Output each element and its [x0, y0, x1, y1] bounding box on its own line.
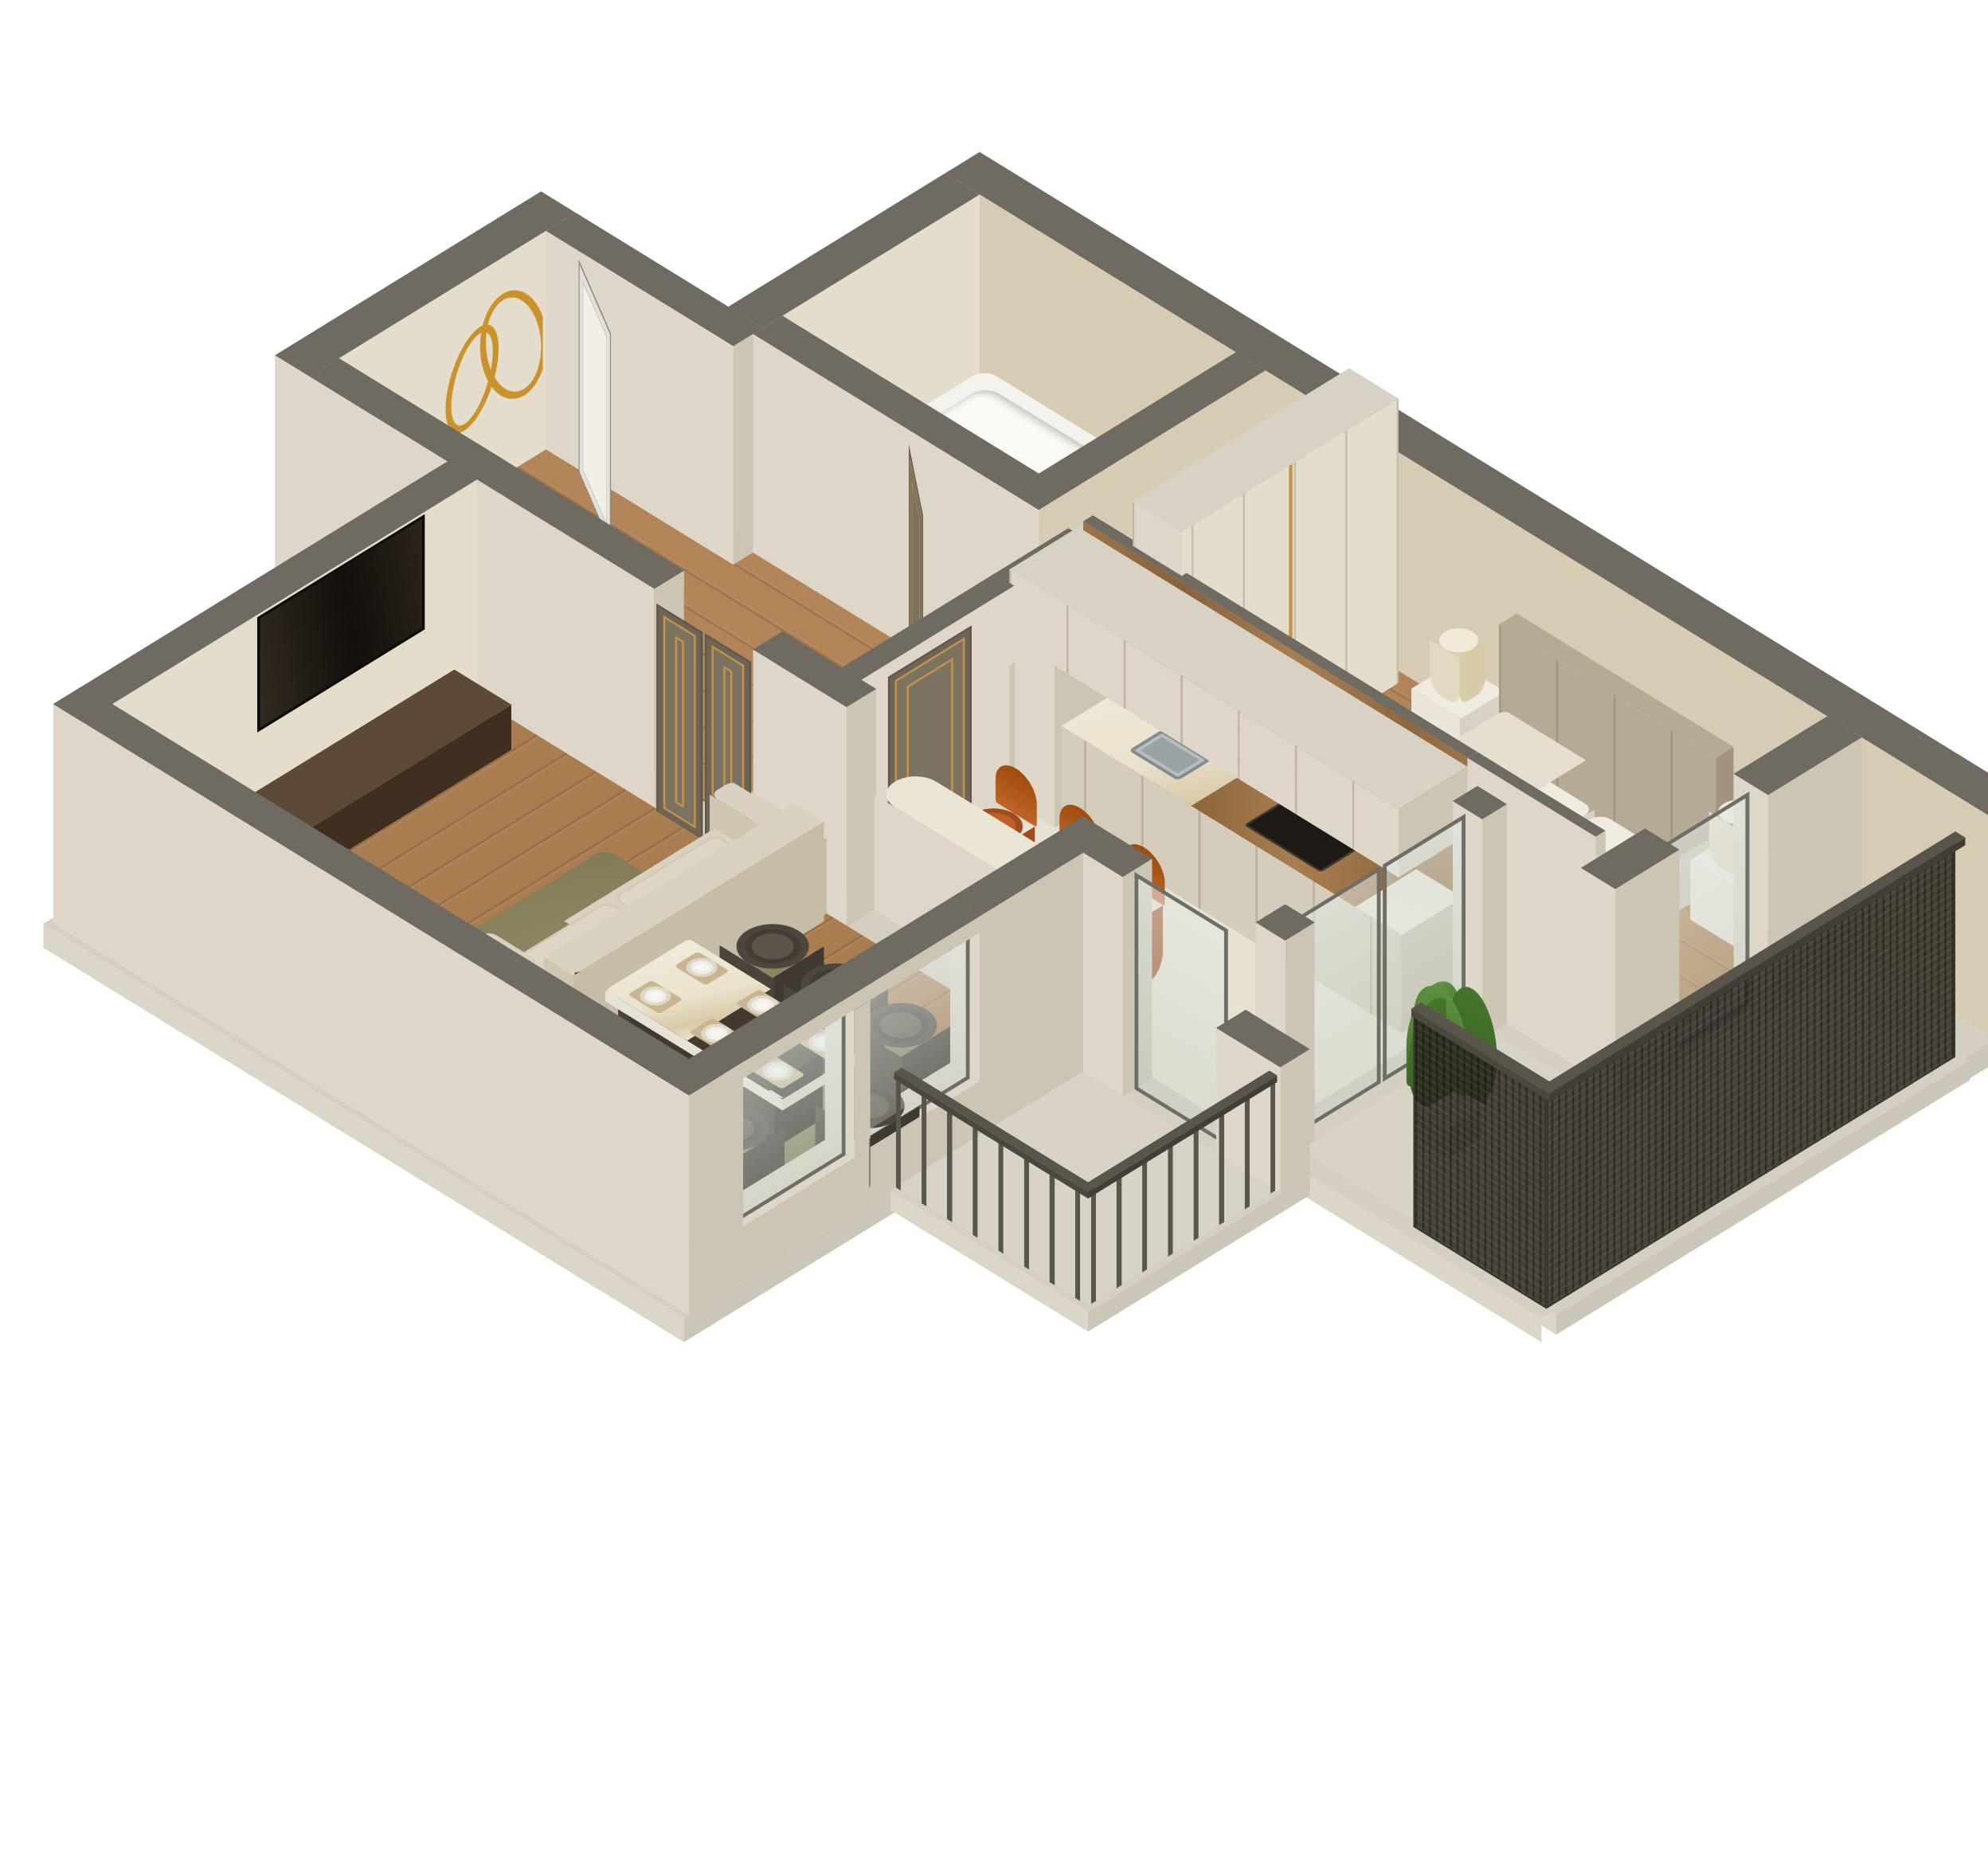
living-double-door-left	[656, 604, 702, 841]
wall-bathroom-west	[728, 174, 980, 328]
floorplan-render-canvas: 3D isometric cutaway floor plan renderin…	[0, 0, 1988, 1857]
